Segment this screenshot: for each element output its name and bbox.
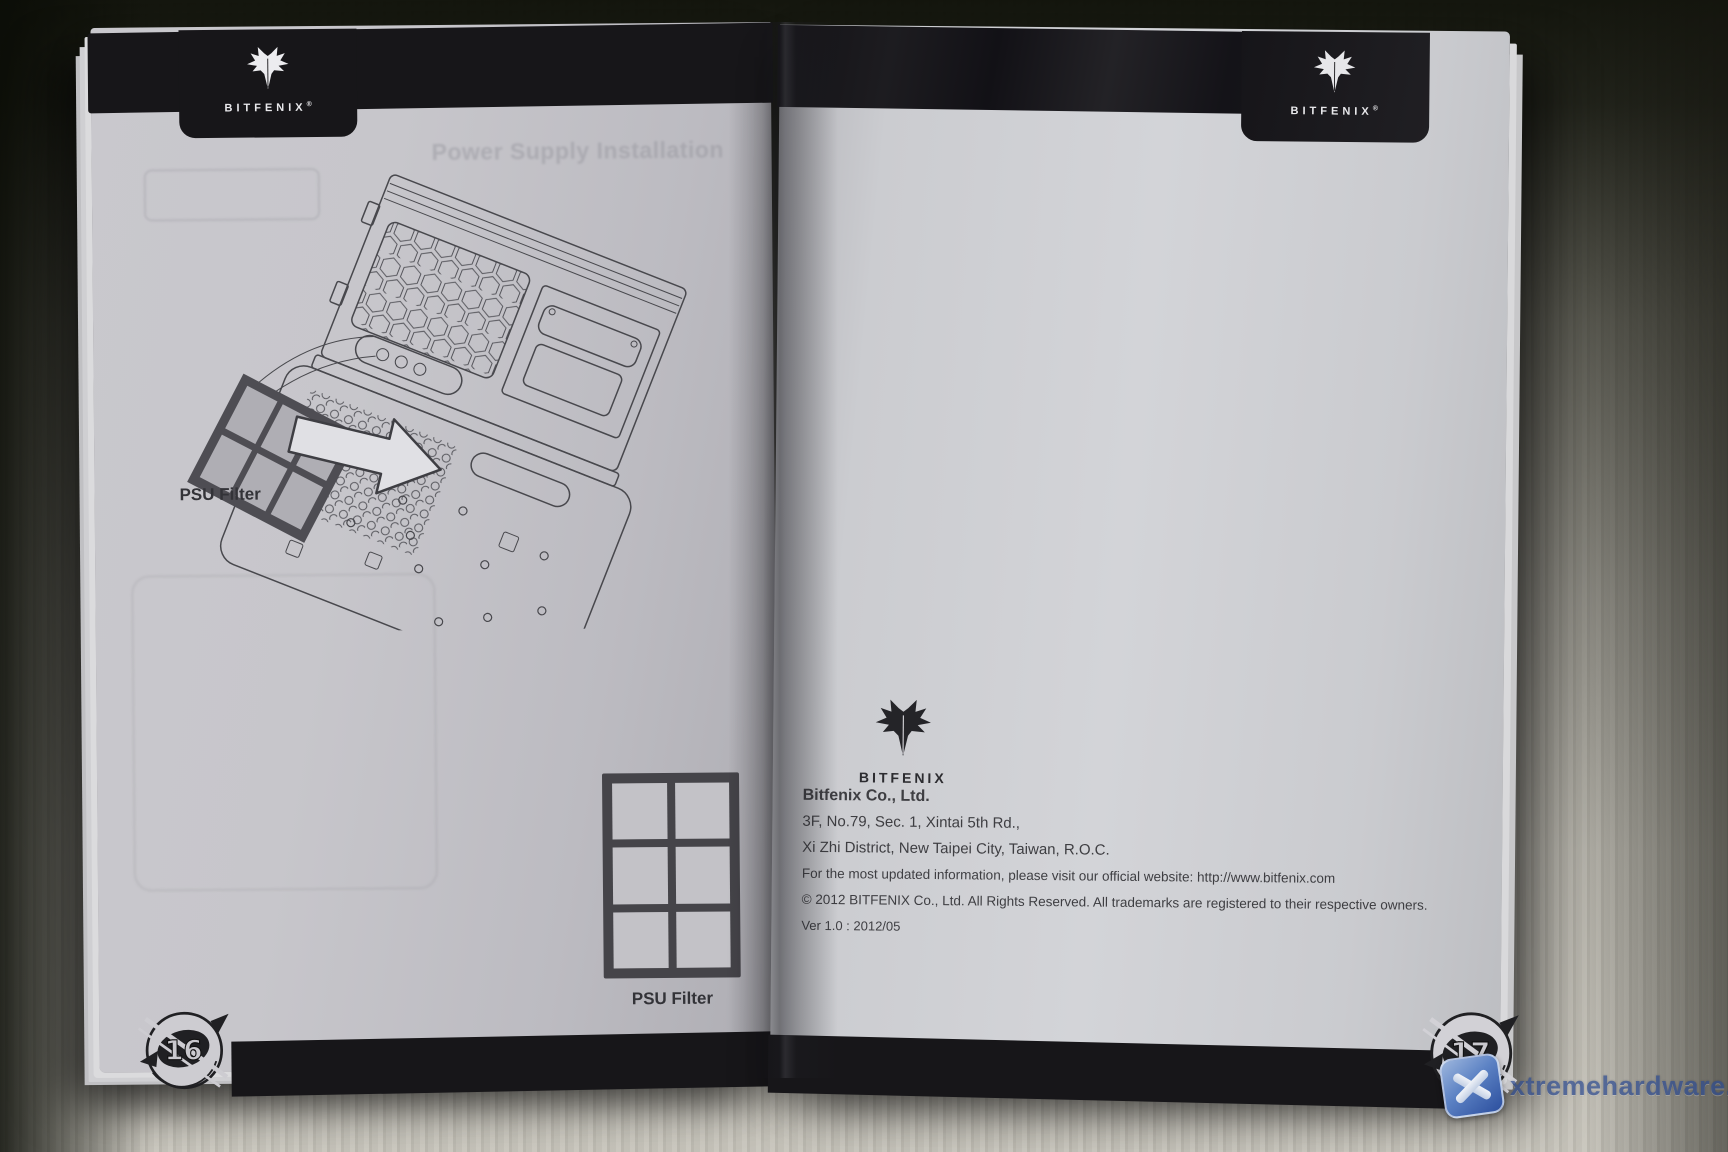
page-number-left: 16 bbox=[164, 1035, 202, 1066]
company-info: Bitfenix Co., Ltd. 3F, No.79, Sec. 1, Xi… bbox=[801, 783, 1428, 945]
psu-filter-figure-label: PSU Filter bbox=[604, 988, 741, 1009]
case-line-drawing bbox=[131, 108, 716, 633]
company-logo: BITFENIX bbox=[828, 693, 979, 786]
phoenix-icon bbox=[241, 42, 295, 96]
psu-filter-diagram-label: PSU Filter bbox=[179, 485, 260, 506]
photo-scene: BITFENIX® Power Supply Installation bbox=[0, 0, 1728, 1152]
x-badge-icon bbox=[1438, 1052, 1506, 1120]
bitfenix-wordmark: BITFENIX® bbox=[1291, 104, 1378, 117]
footer-band-left bbox=[231, 1031, 782, 1097]
filter-cell bbox=[676, 911, 731, 968]
wordmark-text: BITFENIX bbox=[1291, 105, 1373, 118]
bitfenix-logo-left: BITFENIX® bbox=[203, 42, 334, 115]
filter-cell bbox=[613, 847, 668, 904]
registered-mark: ® bbox=[1373, 105, 1378, 112]
bitfenix-logo-right: BITFENIX® bbox=[1269, 45, 1400, 118]
psu-filter-figure bbox=[602, 772, 741, 978]
registered-mark: ® bbox=[307, 101, 312, 108]
filter-cell bbox=[612, 783, 667, 840]
site-watermark: xtremehardware.com bbox=[1442, 1056, 1728, 1116]
page-emblem-16: 16 bbox=[134, 1003, 235, 1104]
watermark-text: xtremehardware.com bbox=[1510, 1071, 1728, 1102]
manual-right-page: BITFENIX® BITFENIX Bitfenix Co., Ltd. 3F… bbox=[770, 25, 1510, 1079]
phoenix-icon bbox=[1307, 46, 1362, 101]
filter-cell bbox=[675, 782, 730, 839]
manual-left-page: BITFENIX® Power Supply Installation bbox=[90, 22, 779, 1073]
filter-cell bbox=[675, 847, 730, 904]
phoenix-icon bbox=[867, 693, 940, 766]
filter-cell bbox=[613, 912, 668, 969]
